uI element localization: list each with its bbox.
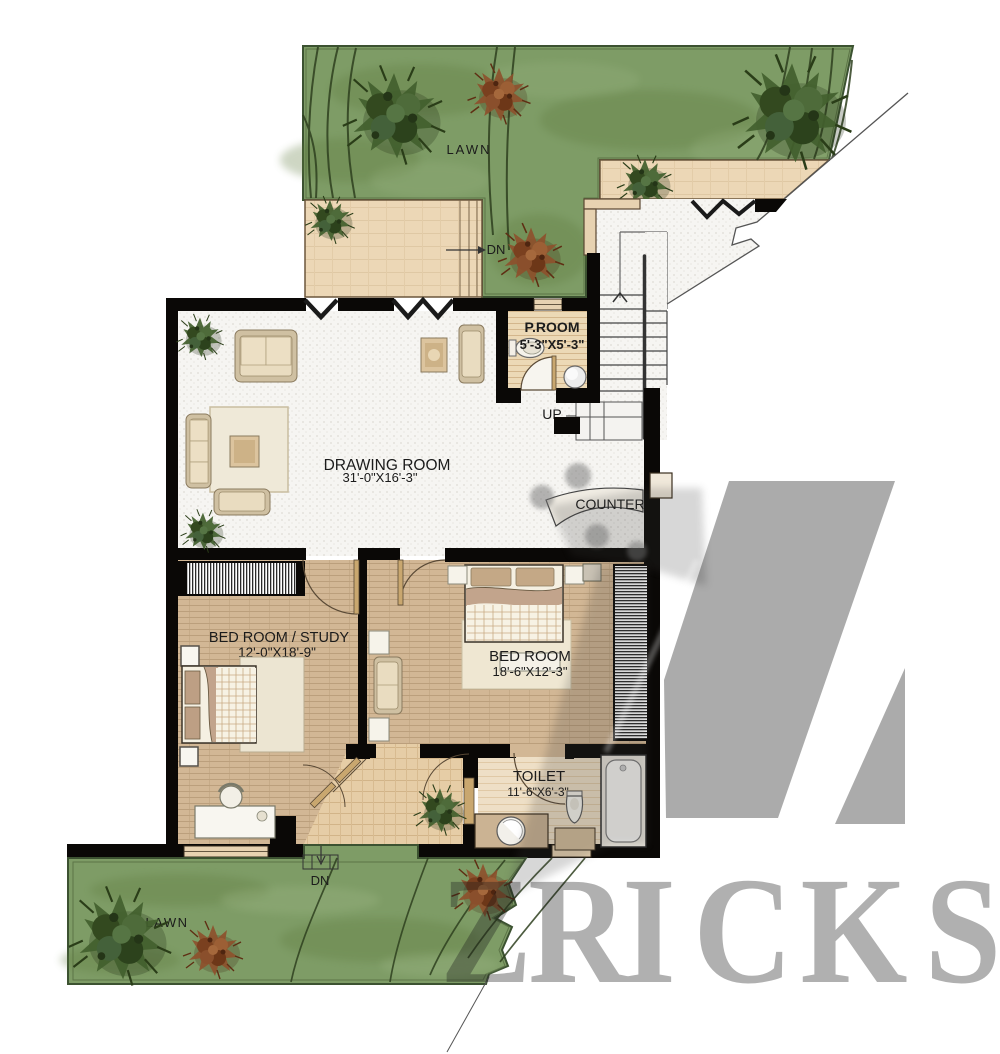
svg-text:18'-6"X12'-3": 18'-6"X12'-3" [493, 664, 568, 679]
svg-text:I: I [622, 846, 676, 1015]
svg-text:LAWN: LAWN [446, 142, 491, 157]
svg-text:BED ROOM / STUDY: BED ROOM / STUDY [209, 630, 350, 646]
svg-text:31'-0"X16'-3": 31'-0"X16'-3" [343, 470, 418, 485]
svg-text:11'-6"X6'-3": 11'-6"X6'-3" [507, 785, 569, 799]
svg-text:5'-3"X5'-3": 5'-3"X5'-3" [520, 337, 585, 352]
svg-text:Z: Z [440, 846, 532, 1015]
svg-text:BED ROOM: BED ROOM [489, 648, 571, 665]
svg-text:P.ROOM: P.ROOM [525, 319, 580, 335]
svg-text:DN: DN [311, 873, 330, 888]
svg-text:C: C [693, 846, 792, 1015]
svg-text:DN: DN [487, 242, 506, 257]
svg-text:R: R [528, 846, 629, 1015]
svg-text:TOILET: TOILET [513, 768, 565, 785]
svg-text:K: K [800, 846, 907, 1015]
svg-text:S: S [925, 846, 1000, 1015]
